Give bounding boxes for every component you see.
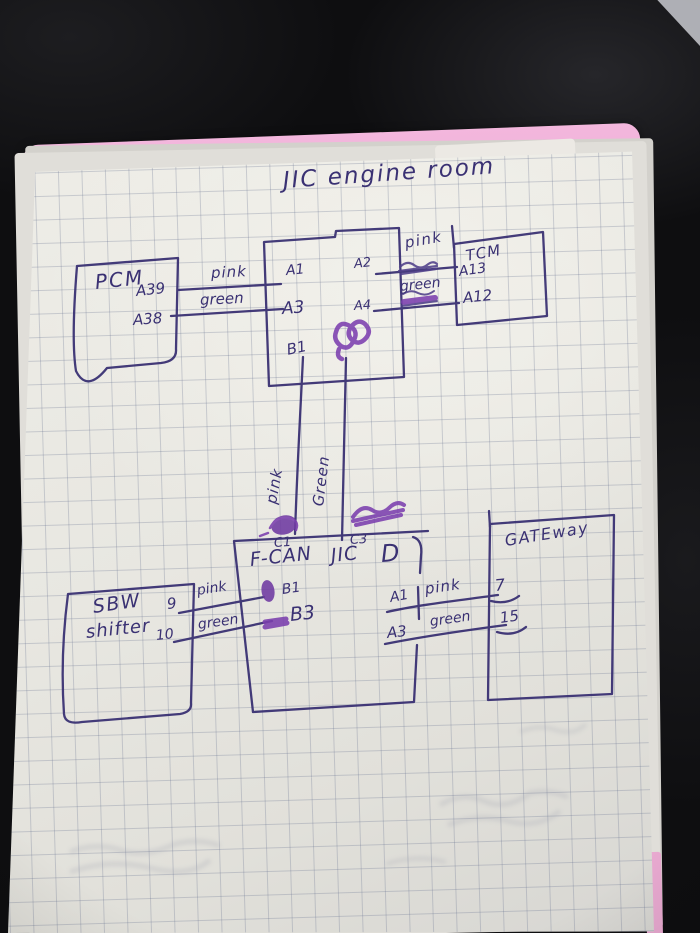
jic-pin-a3: A3	[281, 299, 305, 318]
sbw-wire-pink-label: pink	[196, 579, 228, 597]
sbw-pin-9: 9	[166, 596, 177, 612]
sbw-pin-10: 10	[155, 627, 174, 643]
jic-pin-a4: A4	[354, 299, 372, 313]
sbw-label: SBW	[92, 591, 143, 617]
pcm-pin-a39: A39	[135, 281, 166, 299]
tcm-wire-green-label: green	[399, 276, 441, 294]
jicd-pin-a1: A1	[389, 588, 410, 605]
tcm-wire-pink-label: pink	[404, 230, 444, 251]
jic-pin-a1: A1	[285, 262, 305, 278]
gateway-wire-green-label: green	[429, 609, 471, 629]
jicd-title-fcan: F-CAN	[249, 545, 313, 570]
diagram-labels: JIC engine room PCM A39 A38 pink green A…	[0, 0, 700, 933]
sbw-wire-green-label: green	[197, 612, 239, 632]
gateway-wire-pink-label: pink	[424, 577, 462, 597]
photo-of-notebook: JIC engine room PCM A39 A38 pink green A…	[0, 0, 700, 933]
jicd-title-jic: JIC	[330, 544, 359, 566]
sbw-label-2: shifter	[85, 617, 151, 642]
pcm-pin-a38: A38	[132, 311, 162, 328]
pcm-wire-green-label: green	[200, 291, 244, 308]
trunk-pink-label: pink	[264, 467, 285, 505]
diagram-title: JIC engine room	[282, 155, 496, 193]
gateway-pin-15: 15	[499, 608, 520, 626]
pcm-wire-pink-label: pink	[211, 264, 248, 281]
gateway-pin-7: 7	[494, 577, 506, 594]
trunk-green-label: Green	[311, 455, 332, 507]
jicd-title-d: D	[380, 541, 400, 566]
tcm-pin-a13: A13	[458, 261, 487, 279]
tcm-pin-a12: A12	[462, 288, 493, 306]
gateway-label: GATEway	[504, 520, 590, 549]
jicd-pin-a3: A3	[386, 624, 407, 641]
jic-pin-b1: B1	[285, 339, 308, 358]
jicd-pin-b3: B3	[289, 603, 316, 625]
jicd-pin-b1: B1	[281, 580, 301, 596]
jic-pin-a2: A2	[353, 256, 371, 271]
